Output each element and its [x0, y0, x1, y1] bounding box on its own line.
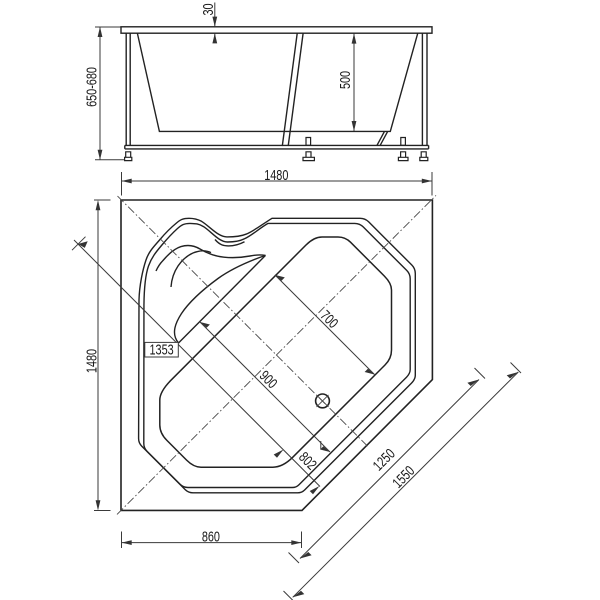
svg-text:802: 802 [296, 448, 321, 473]
svg-text:1480: 1480 [264, 167, 288, 184]
svg-text:650-680: 650-680 [83, 67, 100, 107]
svg-text:1550: 1550 [389, 462, 418, 491]
svg-text:30: 30 [199, 3, 216, 15]
svg-text:1353: 1353 [150, 341, 174, 358]
svg-text:1480: 1480 [83, 349, 100, 373]
svg-text:860: 860 [202, 528, 220, 545]
svg-text:900: 900 [256, 367, 281, 392]
svg-text:1250: 1250 [369, 445, 398, 474]
svg-text:500: 500 [337, 71, 354, 89]
